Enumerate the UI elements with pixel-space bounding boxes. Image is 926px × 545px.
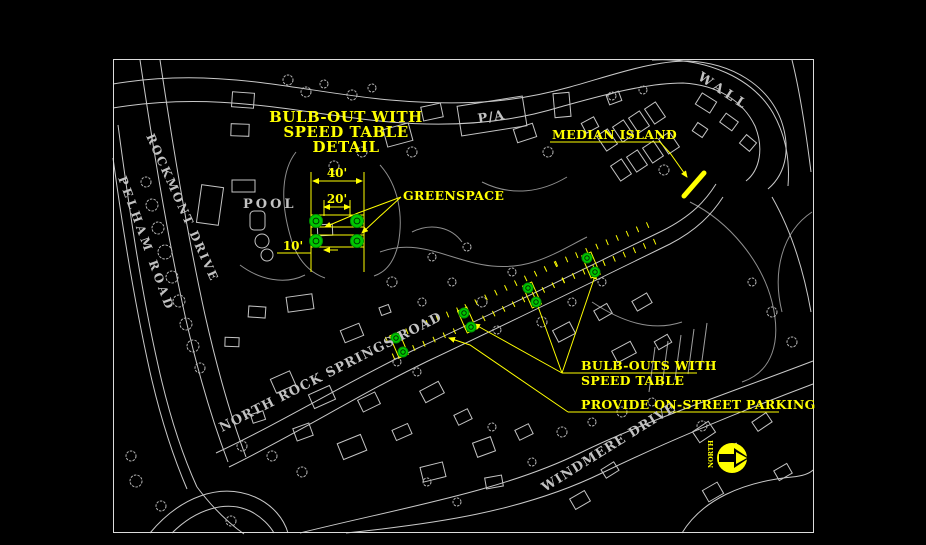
terrain-contour-lines <box>240 152 812 382</box>
dimension-10ft: 10' <box>283 239 303 253</box>
pa-label: P/A <box>477 108 507 127</box>
greenspace-bushes <box>310 215 601 358</box>
greenspace-label: GREENSPACE <box>403 188 504 203</box>
cad-drawing-canvas[interactable]: NORTH BULB-OUT WITH SPEED TABLE DETAIL 4… <box>0 0 926 545</box>
median-island-label: MEDIAN ISLAND <box>552 127 677 142</box>
pool-label: POOL <box>243 197 297 212</box>
road-label-pelham: PELHAM ROAD <box>115 174 177 314</box>
north-arrow-icon: NORTH <box>707 440 749 473</box>
detail-title-line3: DETAIL <box>313 138 380 156</box>
dimension-40ft: 40' <box>327 166 347 180</box>
road-label-north-rock-springs: NORTH ROCK SPRINGS ROAD <box>217 310 445 436</box>
bulb-outs-label-line1: BULB-OUTS WITH <box>581 358 717 373</box>
dimension-20ft: 20' <box>327 192 347 206</box>
parking-label: PROVIDE ON-STREET PARKING <box>581 397 816 412</box>
road-label-windmere: WINDMERE DRIVE <box>538 400 679 496</box>
site-plan-svg: NORTH BULB-OUT WITH SPEED TABLE DETAIL 4… <box>0 0 926 545</box>
building-footprints <box>196 91 792 509</box>
north-arrow-label: NORTH <box>707 440 715 468</box>
parking-tick-marks <box>385 222 655 359</box>
bulb-outs-label-line2: SPEED TABLE <box>581 373 684 388</box>
